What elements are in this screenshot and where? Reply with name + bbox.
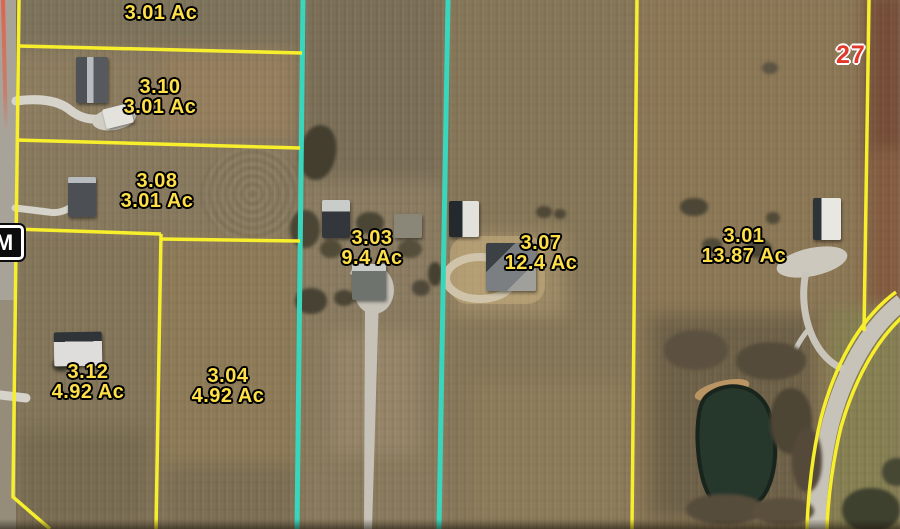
parcel-line-h3 [14,229,161,234]
parcel-label-3-01: 3.0113.87 Ac [702,226,786,266]
aerial-parcel-map[interactable]: 3.01 Ac3.103.01 Ac3.083.01 Ac3.039.4 Ac3… [0,0,900,529]
route-27-label: 27 [836,41,866,70]
route-m-marker: M [0,225,24,260]
parcel-line-mid-vertical [156,234,161,529]
parcel-label-3-01ac-top: 3.01 Ac [125,3,198,23]
parcel-label-3-07: 3.0712.4 Ac [505,233,578,273]
parcel-label-3-12: 3.124.92 Ac [52,362,125,402]
route-m-text: M [0,230,13,256]
parcel-line-road-west [807,292,896,529]
highway-edge-line [3,0,6,132]
parcel-label-3-04: 3.044.92 Ac [192,366,265,406]
parcel-line-h4 [161,239,300,241]
parcel-line-road-east [827,312,900,529]
parcel-label-3-08: 3.083.01 Ac [121,171,194,211]
highlight-boundary-west [297,0,303,529]
parcel-line-left-vertical [13,0,50,529]
parcel-label-3-10: 3.103.01 Ac [124,77,197,117]
parcel-line-h1 [19,46,302,53]
parcel-label-3-03: 3.039.4 Ac [341,228,402,268]
parcel-line-h2 [16,140,300,148]
bottom-edge-shadow [0,519,900,529]
highlight-boundary-east [439,0,448,529]
parcel-line-east-vertical [632,0,637,529]
